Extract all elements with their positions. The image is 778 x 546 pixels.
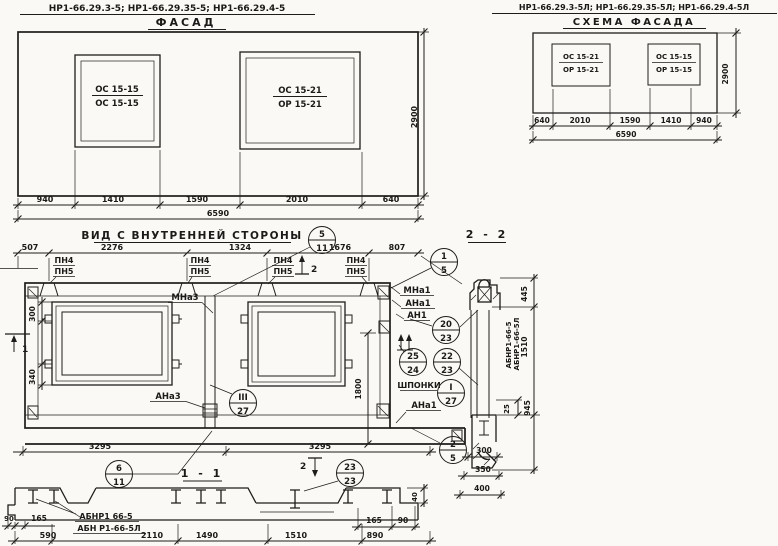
svg-text:27: 27 (445, 397, 457, 407)
label-mna1: МНа1 (403, 286, 430, 296)
svg-text:6: 6 (116, 464, 122, 474)
section-1-1-dims: 90 165 590 2110 1490 1510 890 165 90 40 (2, 484, 436, 545)
window-mark-top: ОС 15-21 (563, 53, 599, 61)
dim-value: 3295 (309, 442, 332, 451)
facade-view: НР1-66.29.3-5; НР1-66.29.35-5; НР1-66.29… (13, 4, 429, 223)
svg-text:ПН4: ПН4 (55, 256, 74, 265)
pn-label: ПН4 ПН5 (50, 256, 75, 283)
dim-total: 6590 (616, 130, 637, 139)
svg-text:25: 25 (407, 352, 419, 362)
scheme-title: СХЕМА ФАСАДА (573, 17, 695, 28)
scheme-window-right: ОС 15-15 ОР 15-15 (648, 44, 700, 85)
panel-drawing-svg: НР1-66.29.3-5; НР1-66.29.35-5; НР1-66.29… (0, 0, 778, 546)
svg-text:23: 23 (344, 463, 356, 473)
label-ana1: АНа1 (405, 299, 430, 309)
dim-1800: 1800 (354, 330, 376, 448)
section-2-2: 2 - 2 445 1510 945 АБНР1-66-5 АБНР1-66-5… (454, 228, 540, 499)
label-shponki: ШПОНКИ (397, 381, 440, 390)
label-mark2: АБН Р1-66-5Л (77, 524, 140, 533)
dim-value: 165 (366, 516, 382, 525)
dim-value: 945 (523, 400, 532, 416)
section-2-marker-top: 2 (295, 255, 317, 275)
window-mark-bottom: ОР 15-15 (656, 66, 692, 74)
facade-panel-outline (18, 32, 418, 196)
arrow-down-icon (312, 470, 318, 477)
arrow-up-icon (11, 335, 17, 342)
label-mark1: АБНР1 66-5 (79, 512, 133, 521)
inner-window-left (42, 302, 182, 385)
arrow-up-icon (398, 334, 404, 341)
svg-text:2: 2 (450, 440, 456, 450)
section-1-1-title: 1 - 1 (181, 467, 224, 480)
extension-lines (492, 278, 540, 470)
dim-value: 90 (4, 515, 14, 523)
svg-text:5: 5 (319, 230, 325, 240)
arrow-up-icon (406, 334, 412, 341)
dim-value: 1590 (620, 116, 641, 125)
shaft (471, 310, 489, 418)
label-an1: АН1 (407, 311, 427, 321)
window-anchors (42, 315, 182, 368)
balloon-2-5: 2 5 (411, 428, 467, 464)
section-2-2-title: 2 - 2 (466, 228, 509, 241)
dim-value: 1490 (196, 531, 219, 540)
label-mark2: АБНР1-66-5Л (513, 317, 521, 370)
dim-value: 1324 (229, 243, 252, 252)
pn-label: ПН4 ПН5 (268, 256, 294, 284)
svg-text:ПН5: ПН5 (191, 267, 210, 276)
scheme-window-left: ОС 15-21 ОР 15-21 (552, 44, 610, 86)
dim-height: 2900 (721, 64, 730, 85)
arrow-up-icon (299, 255, 305, 262)
svg-text:ПН5: ПН5 (55, 267, 74, 276)
marker-label: 2 (311, 265, 317, 275)
pn-label: ПН4 ПН5 (345, 256, 368, 284)
section-1-1: АБНР1 66-5 АБН Р1-66-5Л 90 165 590 2110 … (2, 484, 436, 545)
dim-value: 1410 (102, 195, 125, 204)
section-2-marker-bottom: 2 (300, 458, 322, 477)
inner-left-dims: 300 340 (28, 297, 52, 390)
inner-window-right (241, 302, 352, 386)
section-1-1-labels: АБНР1 66-5 АБН Р1-66-5Л (36, 499, 146, 534)
window-mark-top: ОС 15-21 (278, 86, 322, 96)
inner-title: ВИД С ВНУТРЕННЕЙ СТОРОНЫ (81, 229, 302, 242)
dim-height: 2900 (410, 105, 419, 128)
facade-window-right: ОС 15-21 ОР 15-21 (240, 52, 360, 149)
window-mark-bottom: ОР 15-21 (563, 66, 599, 74)
dim-value: 3295 (89, 442, 112, 451)
svg-text:ПН4: ПН4 (347, 256, 366, 265)
dim-value: 300 (28, 306, 37, 322)
dim-value: 890 (367, 531, 384, 540)
dim-value: 1800 (354, 379, 363, 400)
dim-value: 2010 (286, 195, 309, 204)
dim-value: 1676 (329, 243, 352, 252)
sill-ibeam (479, 421, 489, 435)
svg-text:ПН5: ПН5 (274, 267, 293, 276)
facade-code: НР1-66.29.3-5; НР1-66.29.35-5; НР1-66.29… (49, 4, 286, 14)
svg-text:11: 11 (316, 244, 328, 254)
dim-value: 507 (22, 243, 39, 252)
balloon-23-23: 23 23 (304, 460, 364, 492)
marker-label: 2 (300, 462, 306, 472)
dim-value: 640 (534, 116, 550, 125)
dim-value: 2110 (141, 531, 164, 540)
svg-text:ПН4: ПН4 (191, 256, 210, 265)
svg-text:ПН5: ПН5 (347, 267, 366, 276)
dim-value: 807 (389, 243, 406, 252)
dim-value: 40 (411, 492, 419, 502)
mullion (205, 296, 215, 428)
frame-profiles (28, 490, 392, 508)
dim-value: 1410 (661, 116, 682, 125)
dim-value: 590 (40, 531, 57, 540)
svg-text:20: 20 (440, 320, 452, 330)
scheme-code: НР1-66.29.3-5Л; НР1-66.29.35-5Л; НР1-66.… (519, 3, 749, 12)
dim-value: 300 (476, 446, 492, 455)
label-mna3: МНа3 (171, 293, 198, 303)
balloon-1-5: 1 5 (391, 249, 458, 289)
facade-window-left: ОС 15-15 ОС 15-15 (75, 55, 160, 147)
dim-value: 340 (28, 369, 37, 385)
dim-value: 25 (503, 404, 511, 414)
svg-text:I: I (449, 383, 452, 393)
dim-value: 165 (31, 514, 47, 523)
window-mark-bottom: ОР 15-21 (278, 100, 322, 110)
dim-value: 1510 (285, 531, 308, 540)
svg-text:11: 11 (113, 478, 125, 488)
dim-value: 940 (37, 195, 54, 204)
svg-text:23: 23 (440, 334, 452, 344)
anchor-marks (397, 334, 413, 350)
inner-callouts: МНа3 АНа3 МНа1 АНа1 АН1 ШПОНКИ АНа1 (150, 286, 441, 423)
joint-slots (40, 283, 378, 296)
label-ana3: АНа3 (155, 392, 180, 402)
window-mark-bottom: ОС 15-15 (95, 99, 139, 109)
facade-title: ФАСАД (156, 16, 217, 29)
svg-text:1: 1 (441, 252, 447, 262)
dim-value: 640 (383, 195, 400, 204)
label-ana1-bottom: АНа1 (411, 401, 436, 411)
dim-value: 445 (520, 286, 529, 302)
window-mark-top: ОС 15-15 (95, 85, 139, 95)
section-2-2-profile (470, 280, 500, 468)
svg-text:22: 22 (441, 352, 453, 362)
dim-value: 1590 (186, 195, 209, 204)
drawing-sheet: НР1-66.29.3-5; НР1-66.29.35-5; НР1-66.29… (0, 0, 778, 546)
dim-value: 2276 (101, 243, 124, 252)
extension-lines (18, 32, 429, 222)
dim-total: 6590 (207, 209, 230, 218)
section-2-2-dims: 445 1510 945 АБНР1-66-5 АБНР1-66-5Л 25 3… (454, 274, 540, 499)
extension-lines (38, 302, 52, 385)
svg-text:5: 5 (450, 454, 456, 464)
dim-value: 350 (475, 465, 491, 474)
dim-value: 90 (398, 516, 408, 525)
svg-text:27: 27 (237, 407, 249, 417)
dim-value: 2010 (570, 116, 591, 125)
svg-text:5: 5 (441, 266, 447, 276)
profile-outline (8, 488, 418, 520)
section-1-1-profile (8, 488, 418, 520)
svg-text:24: 24 (407, 366, 419, 376)
label-mark1: АБНР1-66-5 (505, 321, 513, 368)
marker-label: 1 (22, 345, 28, 355)
scheme-view: НР1-66.29.3-5Л; НР1-66.29.35-5Л; НР1-66.… (492, 3, 777, 144)
dim-value: 1510 (520, 337, 529, 358)
svg-text:23: 23 (344, 477, 356, 487)
dim-value: 400 (474, 484, 490, 493)
svg-text:23: 23 (441, 366, 453, 376)
svg-text:III: III (238, 393, 248, 403)
inner-view: ВИД С ВНУТРЕННЕЙ СТОРОНЫ 507 2276 1324 1… (0, 229, 465, 481)
balloon-I-27: I 27 (438, 380, 465, 408)
dim-value: 940 (696, 116, 712, 125)
pn-label: ПН4 ПН5 (188, 256, 211, 283)
window-mark-top: ОС 15-15 (656, 53, 692, 61)
section-1-marker-left: 1 (5, 334, 30, 355)
pn-labels: ПН4 ПН5 ПН4 ПН5 ПН4 ПН5 ПН4 ПН5 (50, 256, 368, 284)
